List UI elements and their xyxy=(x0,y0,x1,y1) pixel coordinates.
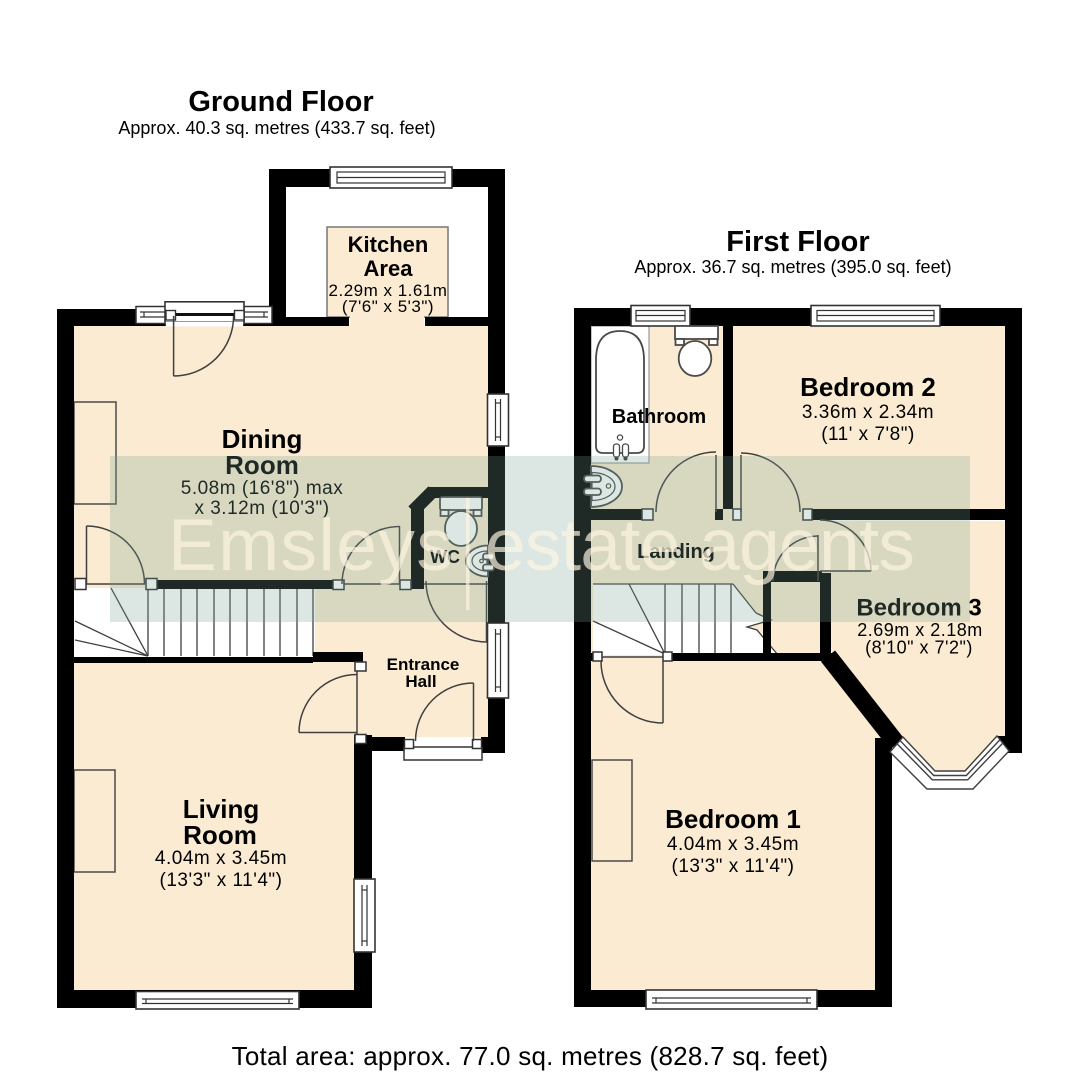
svg-text:Ground Floor: Ground Floor xyxy=(188,86,373,118)
svg-text:(13'3" x 11'4"): (13'3" x 11'4") xyxy=(160,870,283,891)
svg-text:Bedroom 2: Bedroom 2 xyxy=(800,372,936,402)
svg-text:Bathroom: Bathroom xyxy=(612,406,706,428)
svg-text:Room: Room xyxy=(183,820,257,850)
svg-text:(8'10" x 7'2"): (8'10" x 7'2") xyxy=(865,638,973,658)
svg-text:Area: Area xyxy=(364,256,414,281)
svg-text:4.04m x 3.45m: 4.04m x 3.45m xyxy=(667,834,799,855)
svg-text:(11' x 7'8"): (11' x 7'8") xyxy=(821,424,915,445)
svg-text:3.36m x 2.34m: 3.36m x 2.34m xyxy=(802,402,934,423)
svg-text:(7'6" x 5'3"): (7'6" x 5'3") xyxy=(342,297,434,316)
svg-text:First Floor: First Floor xyxy=(726,226,869,258)
svg-text:Approx. 40.3 sq. metres (433.7: Approx. 40.3 sq. metres (433.7 sq. feet) xyxy=(118,118,435,138)
svg-text:Bedroom 1: Bedroom 1 xyxy=(665,804,801,834)
svg-text:Hall: Hall xyxy=(405,672,436,691)
svg-text:estate agents: estate agents xyxy=(485,505,914,586)
svg-text:Total area: approx. 77.0 sq. m: Total area: approx. 77.0 sq. metres (828… xyxy=(232,1041,829,1071)
svg-text:Emsleys: Emsleys xyxy=(168,505,454,586)
svg-text:(13'3" x 11'4"): (13'3" x 11'4") xyxy=(672,856,795,877)
svg-text:Kitchen: Kitchen xyxy=(348,232,429,257)
svg-text:Approx. 36.7 sq. metres (395.0: Approx. 36.7 sq. metres (395.0 sq. feet) xyxy=(634,257,951,277)
svg-text:4.04m x 3.45m: 4.04m x 3.45m xyxy=(155,848,287,869)
